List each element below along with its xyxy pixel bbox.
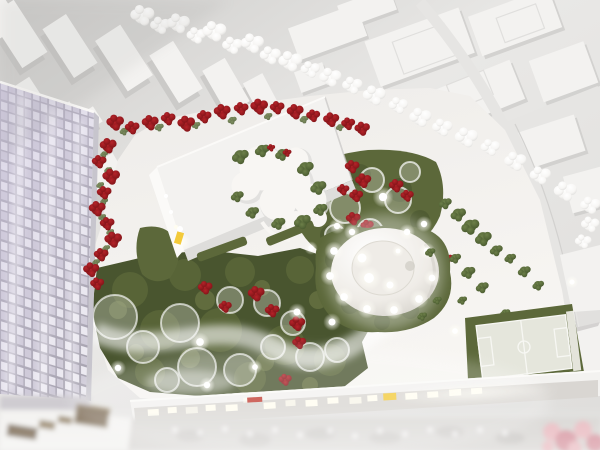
architectural-model-photo [0, 0, 600, 450]
model-scene [0, 0, 600, 450]
